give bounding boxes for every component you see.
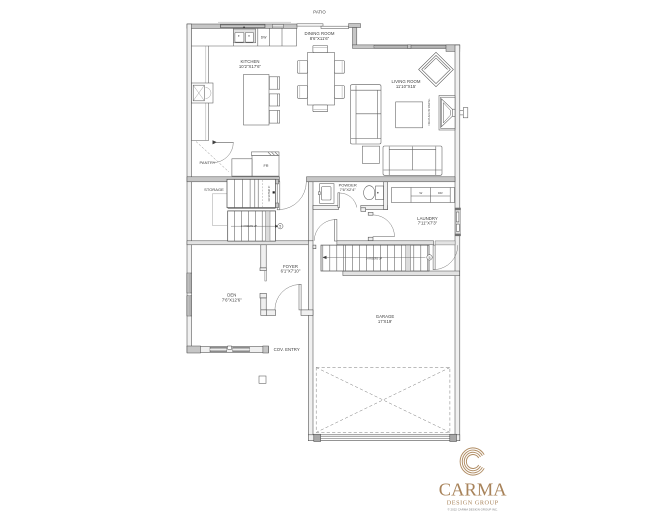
svg-text:7'6"X12'6": 7'6"X12'6" bbox=[222, 297, 242, 302]
svg-text:17'X19': 17'X19' bbox=[378, 319, 392, 324]
svg-text:5: 5 bbox=[429, 256, 431, 260]
svg-text:11'10"X15': 11'10"X15' bbox=[396, 84, 417, 89]
svg-text:STORAGE: STORAGE bbox=[204, 187, 224, 192]
svg-text:CARMA: CARMA bbox=[439, 480, 508, 500]
svg-text:PATIO: PATIO bbox=[313, 10, 326, 15]
svg-text:6'1"X7'10": 6'1"X7'10" bbox=[281, 269, 301, 274]
svg-text:14 RISERS UP: 14 RISERS UP bbox=[366, 257, 383, 260]
svg-text:DESIGN GROUP: DESIGN GROUP bbox=[447, 500, 499, 507]
svg-text:PANTRY: PANTRY bbox=[199, 160, 215, 165]
svg-text:FR: FR bbox=[263, 164, 268, 168]
svg-text:W: W bbox=[419, 191, 422, 195]
svg-text:7'11"X7'3": 7'11"X7'3" bbox=[418, 221, 438, 226]
svg-text:7'6"X2'4": 7'6"X2'4" bbox=[340, 187, 357, 192]
svg-text:COV. ENTRY: COV. ENTRY bbox=[274, 347, 300, 352]
svg-text:10'2"X17'6": 10'2"X17'6" bbox=[239, 64, 262, 69]
svg-text:10 RISERS DN: 10 RISERS DN bbox=[267, 186, 269, 202]
svg-text:5: 5 bbox=[279, 225, 281, 229]
svg-text:DR: DR bbox=[438, 191, 443, 195]
svg-text:FIREPLACE W/ MANTEL: FIREPLACE W/ MANTEL bbox=[428, 98, 431, 126]
svg-text:© 2022 CARMA DESIGN GROUP INC.: © 2022 CARMA DESIGN GROUP INC. bbox=[448, 508, 498, 512]
svg-text:DW: DW bbox=[261, 35, 267, 39]
svg-text:8'6"X11'6": 8'6"X11'6" bbox=[310, 36, 330, 41]
